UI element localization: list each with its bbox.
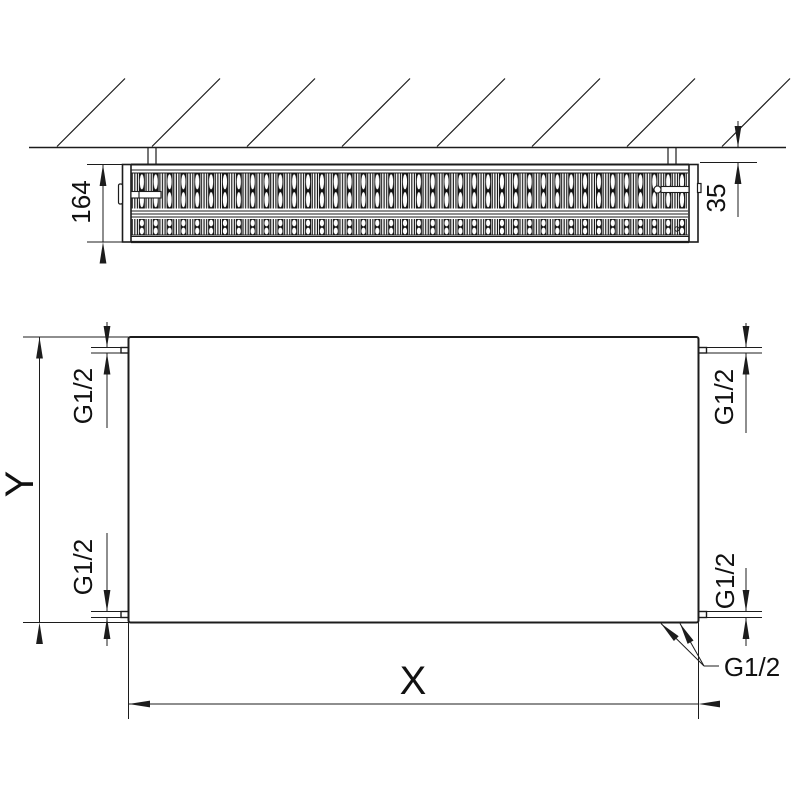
- conn-stub-top-left: [91, 348, 129, 354]
- dim-label-height: Y: [0, 471, 40, 498]
- connection-label-top-left: G1/2: [70, 368, 96, 424]
- connection-label-top-right: G1/2: [711, 369, 737, 425]
- wall-bracket-left: [148, 148, 156, 166]
- dim-label-depth: 164: [68, 180, 94, 223]
- wall-bracket-right: [668, 148, 676, 166]
- top-view: [29, 79, 790, 243]
- water-channel-right: [654, 186, 689, 193]
- conn-stub-bottom-left: [91, 612, 129, 618]
- connection-label-bottom-right: G1/2: [712, 553, 738, 609]
- end-cap-right: [689, 165, 698, 243]
- connection-label-bottom-left: G1/2: [70, 539, 96, 595]
- front-view: [23, 322, 762, 719]
- radiator-front-panel: [129, 337, 699, 623]
- water-channel-left: [131, 192, 161, 199]
- conn-stub-top-right: [699, 348, 763, 354]
- conn-stub-bottom-right: [699, 612, 763, 618]
- end-cap-left: [123, 165, 132, 243]
- dim-label-wall-gap: 35: [703, 184, 729, 213]
- dim-label-width: X: [400, 661, 427, 701]
- radiator-section: [119, 165, 702, 243]
- wall-hatching: [29, 79, 790, 148]
- leader-bottom-connections: [661, 624, 719, 667]
- radiator-technical-drawing: 164 35 Y X G1/2 G1/2 G1/2 G1/2 G1/2: [0, 0, 800, 800]
- end-cap-left-tab: [119, 184, 123, 204]
- connection-label-bottom-center: G1/2: [724, 654, 780, 680]
